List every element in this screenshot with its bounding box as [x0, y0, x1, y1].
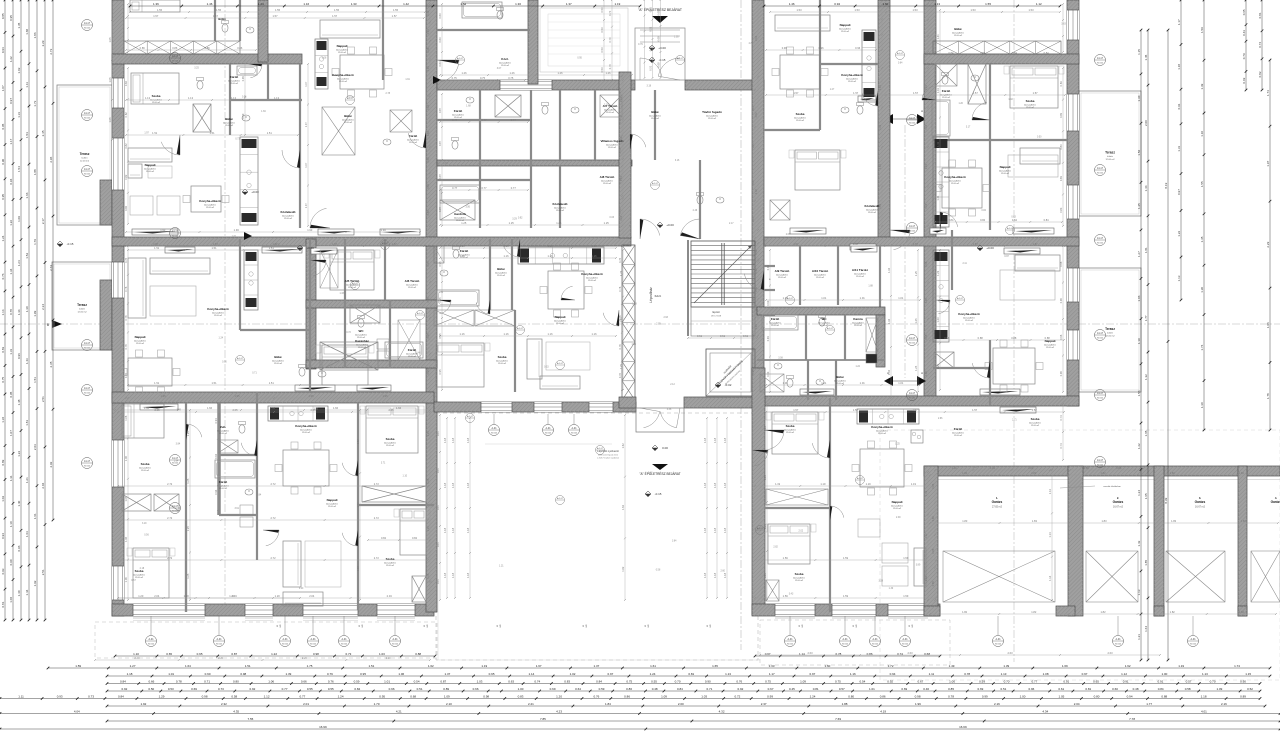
svg-text:0.77: 0.77 [481, 186, 487, 190]
svg-text:0.91: 0.91 [1063, 680, 1069, 684]
svg-text:1.20: 1.20 [138, 594, 144, 598]
svg-text:0.63: 0.63 [438, 37, 442, 43]
svg-text:1.81: 1.81 [1144, 247, 1148, 253]
svg-text:3.29: 3.29 [512, 219, 517, 221]
svg-text:1.25: 1.25 [509, 221, 515, 225]
svg-text:0.79: 0.79 [1242, 53, 1246, 59]
svg-text:0.86: 0.86 [931, 581, 935, 587]
svg-text:1.57: 1.57 [913, 91, 919, 95]
svg-text:1.63: 1.63 [25, 531, 29, 537]
svg-text:14-17: 14-17 [1097, 459, 1104, 462]
svg-text:1.93: 1.93 [307, 228, 313, 232]
svg-text:1.59: 1.59 [843, 594, 849, 598]
svg-text:1.23: 1.23 [619, 364, 623, 370]
svg-text:2.82: 2.82 [749, 43, 754, 45]
svg-text:0.69: 0.69 [426, 183, 430, 189]
svg-text:1.61: 1.61 [33, 513, 37, 519]
svg-text:0.96: 0.96 [1059, 371, 1063, 377]
svg-text:1.78: 1.78 [632, 304, 637, 306]
svg-text:lakó padlófel.: lakó padlófel. [384, 562, 396, 564]
svg-text:WC: WC [359, 329, 365, 333]
svg-text:1.84: 1.84 [261, 111, 266, 113]
svg-text:2.66: 2.66 [938, 418, 943, 420]
svg-text:0.61: 0.61 [1058, 687, 1064, 691]
svg-text:0.94: 0.94 [834, 2, 840, 6]
svg-text:Kamra: Kamra [853, 317, 863, 321]
svg-text:1.23: 1.23 [936, 317, 940, 323]
svg-text:16.67 m2: 16.67 m2 [1113, 506, 1124, 509]
svg-text:A-1.07: A-1.07 [897, 52, 904, 55]
svg-text:0.95: 0.95 [379, 695, 385, 699]
svg-text:Fürdő: Fürdő [942, 89, 951, 93]
svg-text:Konyha-étkező: Konyha-étkező [295, 424, 317, 428]
svg-text:A/9 Tároló: A/9 Tároló [775, 269, 790, 273]
svg-text:0.65: 0.65 [1093, 680, 1099, 684]
svg-text:14-17: 14-17 [909, 117, 916, 120]
svg-text:90/240: 90/240 [84, 348, 91, 350]
svg-text:Szoba: Szoba [1026, 99, 1035, 103]
svg-text:12.00 m2: 12.00 m2 [386, 445, 395, 447]
svg-text:12.00 m2: 12.00 m2 [219, 433, 228, 435]
svg-text:0.94: 0.94 [214, 489, 218, 495]
svg-text:1.64: 1.64 [185, 664, 191, 668]
svg-text:3.17: 3.17 [966, 127, 971, 129]
svg-text:1.13: 1.13 [1202, 672, 1208, 676]
svg-text:1.81: 1.81 [25, 420, 29, 426]
svg-text:1.31: 1.31 [9, 475, 13, 481]
svg-text:0.95: 0.95 [9, 391, 13, 397]
svg-text:Közlekedő: Közlekedő [864, 204, 879, 208]
svg-text:0.69: 0.69 [191, 687, 197, 691]
svg-text:0.97: 0.97 [436, 467, 440, 473]
svg-text:1.82: 1.82 [1170, 471, 1176, 475]
svg-text:12.00 m2: 12.00 m2 [954, 435, 963, 437]
svg-text:18×17.5/28: 18×17.5/28 [711, 315, 722, 318]
svg-text:0.97: 0.97 [436, 541, 440, 547]
svg-text:1.18: 1.18 [127, 672, 133, 676]
svg-text:0.88: 0.88 [415, 652, 421, 656]
svg-text:1.62: 1.62 [428, 664, 434, 668]
svg-text:lakó padlófel.: lakó padlófel. [794, 117, 806, 119]
svg-text:A-01: A-01 [216, 638, 222, 641]
svg-text:1.57: 1.57 [332, 242, 338, 246]
svg-text:1.10: 1.10 [133, 652, 139, 656]
svg-text:0.90: 0.90 [9, 559, 13, 565]
svg-text:1.24: 1.24 [258, 2, 264, 6]
svg-text:0.94: 0.94 [214, 418, 218, 424]
svg-text:1.85: 1.85 [1144, 560, 1148, 566]
svg-text:0.91: 0.91 [1157, 680, 1163, 684]
svg-text:+0.00: +0.00 [986, 246, 994, 250]
svg-text:A-1.07: A-1.07 [417, 312, 424, 315]
svg-text:lakó padlófel.: lakó padlófel. [601, 180, 613, 182]
svg-text:0.76: 0.76 [618, 344, 622, 350]
svg-text:Szoba: Szoba [796, 112, 805, 116]
svg-text:0.53: 0.53 [600, 47, 604, 53]
svg-text:-0.15: -0.15 [659, 58, 666, 62]
svg-text:1.56: 1.56 [1137, 149, 1141, 155]
svg-text:1.62: 1.62 [621, 566, 625, 572]
svg-text:0.96: 0.96 [17, 353, 21, 359]
svg-text:lakó padlófel.: lakó padlófel. [495, 272, 507, 274]
svg-text:1.13: 1.13 [725, 672, 731, 676]
svg-text:Konyha-étkező: Konyha-étkező [332, 73, 354, 77]
svg-text:1.05: 1.05 [108, 37, 112, 43]
svg-text:1.57: 1.57 [392, 14, 398, 18]
svg-text:14-17: 14-17 [1097, 237, 1104, 240]
svg-text:0.72: 0.72 [734, 695, 740, 699]
svg-text:0.95: 0.95 [426, 297, 430, 303]
svg-text:2.78: 2.78 [386, 93, 391, 95]
svg-text:12.00 m2: 12.00 m2 [408, 356, 417, 358]
svg-text:0.83: 0.83 [564, 680, 570, 684]
svg-text:Bübé: Bübé [497, 267, 505, 271]
svg-text:0.95: 0.95 [751, 369, 755, 375]
svg-text:1.18: 1.18 [1177, 64, 1181, 70]
svg-text:1.10: 1.10 [403, 476, 408, 478]
svg-text:90/240: 90/240 [909, 398, 916, 400]
svg-text:1.16: 1.16 [459, 332, 465, 336]
svg-text:90/240: 90/240 [787, 644, 794, 646]
svg-text:0.87: 0.87 [231, 652, 237, 656]
svg-text:1.95: 1.95 [382, 394, 388, 398]
svg-text:2.72: 2.72 [49, 48, 53, 54]
svg-text:lakó padlófel.: lakó padlófel. [876, 430, 888, 432]
svg-text:Távhő fogadó: Távhő fogadó [702, 110, 722, 114]
svg-text:lakó padlófel.: lakó padlófel. [949, 180, 961, 182]
svg-text:90/240: 90/240 [84, 118, 91, 120]
svg-text:2.04: 2.04 [1074, 702, 1080, 706]
svg-text:1.12: 1.12 [1121, 672, 1127, 676]
svg-text:Szoba: Szoba [386, 437, 395, 441]
svg-text:0.96: 0.96 [389, 687, 395, 691]
svg-text:0.49: 0.49 [426, 10, 430, 16]
svg-text:1.18: 1.18 [713, 437, 717, 443]
svg-text:0.76: 0.76 [124, 286, 128, 292]
svg-text:2.72: 2.72 [270, 556, 276, 560]
svg-text:1.18: 1.18 [443, 527, 447, 533]
svg-text:0.84: 0.84 [1012, 51, 1018, 55]
svg-text:7.55: 7.55 [247, 717, 253, 721]
svg-text:1.00: 1.00 [949, 680, 955, 684]
svg-text:0.09: 0.09 [425, 96, 430, 98]
svg-text:0.96: 0.96 [924, 371, 928, 377]
svg-text:1.07: 1.07 [304, 162, 308, 168]
svg-text:0.93: 0.93 [766, 336, 770, 342]
svg-text:1.18: 1.18 [466, 527, 470, 533]
svg-text:90/240: 90/240 [172, 463, 179, 465]
svg-text:B: B [47, 323, 49, 327]
svg-text:1.74: 1.74 [1234, 664, 1240, 668]
svg-text:1.18: 1.18 [443, 437, 447, 443]
svg-text:1.66: 1.66 [207, 406, 213, 410]
svg-text:2.00: 2.00 [1144, 120, 1148, 126]
svg-text:0.15: 0.15 [544, 366, 549, 368]
svg-text:1.00: 1.00 [518, 687, 524, 691]
svg-text:lakó padlófel.: lakó padlófel. [282, 215, 294, 217]
svg-text:lakó padlófel.: lakó padlófel. [1024, 104, 1036, 106]
svg-text:14-17: 14-17 [1097, 392, 1104, 395]
svg-text:1.57: 1.57 [153, 14, 159, 18]
svg-text:1.22: 1.22 [855, 366, 860, 368]
svg-text:1.18: 1.18 [723, 572, 727, 578]
svg-text:1.13: 1.13 [145, 96, 151, 100]
svg-text:12.00 m2: 12.00 m2 [893, 508, 902, 510]
svg-text:Nappali: Nappali [892, 500, 903, 504]
svg-text:12.00 m2: 12.00 m2 [951, 183, 960, 185]
svg-text:A-1.07: A-1.07 [1007, 227, 1014, 230]
svg-text:2.45: 2.45 [41, 130, 45, 136]
svg-text:1.18: 1.18 [703, 482, 707, 488]
svg-text:Bübé: Bübé [344, 114, 352, 118]
svg-text:lakó padlófel.: lakó padlófel. [776, 274, 788, 276]
svg-text:4.23: 4.23 [556, 710, 562, 714]
svg-text:3.89: 3.89 [916, 564, 921, 566]
svg-text:0.95: 0.95 [1, 194, 5, 200]
svg-text:1.04: 1.04 [878, 203, 882, 209]
svg-text:2.17: 2.17 [41, 218, 45, 224]
svg-text:1.91: 1.91 [405, 79, 410, 81]
svg-text:12.00 m2: 12.00 m2 [603, 183, 612, 185]
svg-text:0.95: 0.95 [360, 672, 366, 676]
svg-text:1.18: 1.18 [451, 482, 455, 488]
svg-text:1.18: 1.18 [723, 482, 727, 488]
svg-text:1.31: 1.31 [17, 112, 21, 118]
svg-text:0.94: 0.94 [214, 453, 218, 459]
svg-text:1.01: 1.01 [952, 466, 958, 470]
svg-text:lakó padlófel.: lakó padlófel. [342, 119, 354, 121]
svg-text:0.79: 0.79 [638, 44, 643, 46]
svg-text:1.45: 1.45 [1144, 54, 1148, 60]
svg-text:14-17: 14-17 [172, 55, 179, 58]
svg-text:1.69: 1.69 [1062, 664, 1068, 668]
svg-text:2.02: 2.02 [754, 112, 758, 118]
svg-text:0.50: 0.50 [148, 687, 154, 691]
svg-text:lakó padlófel.: lakó padlófel. [818, 322, 830, 324]
svg-text:1.59: 1.59 [903, 594, 909, 598]
svg-text:1.22: 1.22 [1177, 230, 1181, 236]
svg-text:12.00 m2: 12.00 m2 [152, 102, 161, 104]
svg-text:1.66: 1.66 [270, 406, 276, 410]
svg-text:Nappali: Nappali [555, 315, 566, 319]
svg-text:0.84: 0.84 [1158, 687, 1164, 691]
svg-text:4.21: 4.21 [396, 710, 402, 714]
svg-text:2.60: 2.60 [720, 571, 725, 573]
svg-text:90/240: 90/240 [902, 644, 909, 646]
svg-text:90/240: 90/240 [84, 466, 91, 468]
svg-text:3.64: 3.64 [672, 541, 677, 543]
svg-text:1.85: 1.85 [755, 260, 760, 262]
svg-text:0.80: 0.80 [848, 695, 854, 699]
svg-text:0.94: 0.94 [1, 47, 5, 53]
svg-text:1.61: 1.61 [650, 664, 656, 668]
svg-text:0.86: 0.86 [237, 46, 243, 50]
svg-text:1.25: 1.25 [426, 573, 430, 579]
svg-text:Garázs: Garázs [1113, 500, 1124, 504]
svg-text:0.97: 0.97 [751, 105, 755, 111]
svg-text:0.69: 0.69 [550, 687, 556, 691]
svg-text:1.51: 1.51 [33, 377, 37, 383]
svg-text:1.15: 1.15 [1137, 49, 1141, 55]
svg-text:1.25: 1.25 [914, 365, 918, 371]
svg-text:0.53: 0.53 [600, 7, 604, 13]
svg-text:lakó padlófel.: lakó padlófel. [139, 467, 151, 469]
svg-text:0.69: 0.69 [901, 687, 907, 691]
svg-text:0.75: 0.75 [508, 76, 514, 80]
svg-text:Közl.: Közl. [501, 57, 508, 61]
svg-text:0.56: 0.56 [144, 535, 149, 537]
svg-text:12.00 m2: 12.00 m2 [848, 81, 857, 83]
svg-text:1.86: 1.86 [33, 32, 37, 38]
svg-text:1.30: 1.30 [25, 306, 29, 312]
svg-text:1.03: 1.03 [701, 695, 707, 699]
svg-text:1.46: 1.46 [789, 2, 795, 6]
svg-text:14-17: 14-17 [84, 387, 91, 390]
svg-text:12.00 m2: 12.00 m2 [338, 52, 347, 54]
svg-text:0.54: 0.54 [414, 680, 420, 684]
svg-text:0.95: 0.95 [577, 58, 582, 60]
svg-text:0.53: 0.53 [600, 27, 604, 33]
svg-text:0.95: 0.95 [438, 333, 442, 339]
svg-text:14-17: 14-17 [84, 22, 91, 25]
svg-text:0.71: 0.71 [252, 372, 257, 374]
svg-text:1.25: 1.25 [461, 221, 467, 225]
svg-text:1.18: 1.18 [713, 482, 717, 488]
svg-text:12.00 m2: 12.00 m2 [80, 161, 90, 163]
svg-text:1.13: 1.13 [1001, 672, 1007, 676]
svg-text:1.62: 1.62 [621, 443, 625, 449]
svg-text:12.00 m2: 12.00 m2 [1046, 347, 1055, 349]
svg-text:0.43: 0.43 [1242, 30, 1246, 36]
svg-text:0.84: 0.84 [1044, 51, 1050, 55]
svg-text:1.53: 1.53 [970, 8, 976, 12]
svg-text:0.84: 0.84 [596, 680, 602, 684]
svg-text:2.16: 2.16 [1221, 702, 1227, 706]
svg-text:0.99: 0.99 [767, 695, 773, 699]
svg-text:1.26: 1.26 [461, 71, 467, 75]
svg-text:1.29: 1.29 [763, 572, 767, 578]
svg-text:0.76: 0.76 [124, 257, 128, 263]
svg-text:1.27: 1.27 [1137, 251, 1141, 257]
svg-text:0.78: 0.78 [9, 309, 13, 315]
svg-text:1.20: 1.20 [275, 594, 281, 598]
svg-text:1.07: 1.07 [9, 430, 13, 436]
svg-text:0.76: 0.76 [1, 273, 5, 279]
svg-text:Büké: Büké [651, 110, 659, 114]
svg-text:0.59: 0.59 [354, 680, 360, 684]
svg-text:1.59: 1.59 [1200, 27, 1204, 33]
svg-text:Bübé: Bübé [225, 117, 233, 121]
svg-text:12.00 m2: 12.00 m2 [556, 323, 565, 325]
svg-text:Konyha-étkező: Konyha-étkező [944, 175, 966, 179]
svg-text:0.68: 0.68 [657, 62, 661, 68]
svg-text:0.76: 0.76 [124, 315, 128, 321]
svg-text:0.76: 0.76 [618, 286, 622, 292]
svg-text:90/240: 90/240 [392, 644, 399, 646]
svg-text:1.16: 1.16 [303, 2, 309, 6]
svg-text:1.20: 1.20 [556, 695, 562, 699]
svg-text:90/240: 90/240 [842, 644, 849, 646]
svg-text:1.66: 1.66 [396, 406, 402, 410]
svg-text:12.00 m2: 12.00 m2 [588, 280, 597, 282]
svg-text:1.01: 1.01 [860, 296, 866, 300]
svg-text:12.00 m2: 12.00 m2 [146, 171, 155, 173]
svg-text:1.95: 1.95 [234, 394, 240, 398]
svg-text:1.53: 1.53 [25, 132, 29, 138]
svg-text:0.67: 0.67 [765, 652, 771, 656]
svg-text:0.84: 0.84 [981, 210, 986, 212]
svg-text:1.17: 1.17 [1177, 19, 1181, 25]
svg-text:1.14: 1.14 [1048, 489, 1052, 495]
svg-text:0.79: 0.79 [327, 672, 333, 676]
svg-text:A-1.07: A-1.07 [457, 57, 464, 60]
svg-text:0.73: 0.73 [345, 652, 351, 656]
svg-text:3.46: 3.46 [416, 353, 421, 355]
svg-text:0.95: 0.95 [438, 369, 442, 375]
svg-text:3.61: 3.61 [234, 508, 239, 510]
svg-text:1.09: 1.09 [17, 216, 21, 222]
svg-text:1.51: 1.51 [269, 381, 275, 385]
svg-text:2.72: 2.72 [167, 516, 173, 520]
svg-text:1.84: 1.84 [605, 702, 611, 706]
svg-text:Közlekedő: Közlekedő [552, 202, 567, 206]
svg-text:12.00 m2: 12.00 m2 [1026, 107, 1035, 109]
svg-text:12.00 m2: 12.00 m2 [965, 320, 974, 322]
svg-text:90/240: 90/240 [1190, 644, 1197, 646]
svg-text:1.42: 1.42 [403, 2, 409, 6]
svg-text:1.16: 1.16 [503, 332, 509, 336]
svg-text:1.95: 1.95 [160, 394, 166, 398]
svg-text:A-1.07: A-1.07 [787, 297, 794, 300]
svg-text:1.01: 1.01 [384, 680, 390, 684]
svg-text:lakó padlófel.: lakó padlófel. [452, 114, 464, 116]
svg-text:2.82: 2.82 [773, 546, 778, 548]
svg-text:lakó padlófel.: lakó padlófel. [784, 429, 796, 431]
svg-text:0.67: 0.67 [768, 687, 774, 691]
svg-text:90/240: 90/240 [1097, 243, 1104, 245]
svg-text:12.00 m2: 12.00 m2 [135, 577, 144, 579]
svg-text:1.12: 1.12 [924, 490, 928, 496]
svg-text:2.63: 2.63 [1107, 651, 1113, 655]
svg-text:1.22: 1.22 [271, 652, 277, 656]
svg-text:1.95: 1.95 [308, 394, 314, 398]
svg-text:0.85: 0.85 [948, 687, 954, 691]
svg-text:90/240: 90/240 [909, 231, 916, 233]
svg-text:Terasz: Terasz [1105, 151, 1115, 155]
svg-text:0.82: 0.82 [381, 536, 387, 540]
svg-text:1.22: 1.22 [9, 56, 13, 62]
svg-text:1.57: 1.57 [973, 91, 979, 95]
svg-text:1.10: 1.10 [9, 521, 13, 527]
svg-text:0.92: 0.92 [737, 687, 743, 691]
svg-text:8.39: 8.39 [1164, 497, 1168, 503]
svg-text:0.96: 0.96 [855, 46, 861, 50]
svg-text:14-17: 14-17 [909, 225, 916, 228]
svg-text:0.98: 0.98 [202, 695, 208, 699]
svg-text:2.09: 2.09 [514, 239, 519, 241]
svg-text:1.92: 1.92 [140, 702, 146, 706]
svg-text:1.51: 1.51 [152, 131, 158, 135]
svg-text:3.99: 3.99 [176, 410, 181, 412]
svg-text:0.48: 0.48 [1133, 687, 1139, 691]
svg-text:A-1.07: A-1.07 [677, 57, 684, 60]
svg-text:lakó padlófel.: lakó padlófel. [499, 62, 511, 64]
svg-text:0.76: 0.76 [618, 257, 622, 263]
svg-text:A-01: A-01 [1190, 638, 1196, 641]
svg-text:0.97: 0.97 [436, 504, 440, 510]
svg-text:1.02: 1.02 [1008, 99, 1013, 101]
svg-text:1.01: 1.01 [168, 672, 174, 676]
